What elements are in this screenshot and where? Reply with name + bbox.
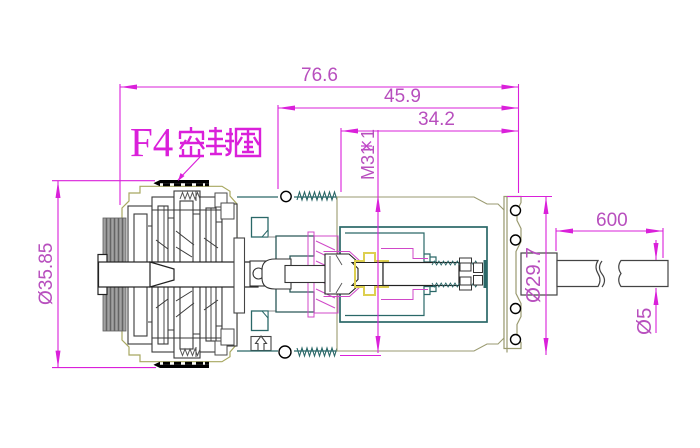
svg-text:76.6: 76.6 [301,65,338,86]
svg-text:F4: F4 [130,119,173,165]
svg-text:Ø29.7: Ø29.7 [522,247,545,303]
svg-text:34.2: 34.2 [418,109,455,130]
svg-text:45.9: 45.9 [384,86,421,107]
svg-text:1: 1 [358,129,378,139]
svg-text:Ø35.85: Ø35.85 [36,243,57,305]
svg-text:600: 600 [596,210,628,231]
svg-text:Ø5: Ø5 [633,308,656,335]
svg-text:M31: M31 [358,145,378,180]
